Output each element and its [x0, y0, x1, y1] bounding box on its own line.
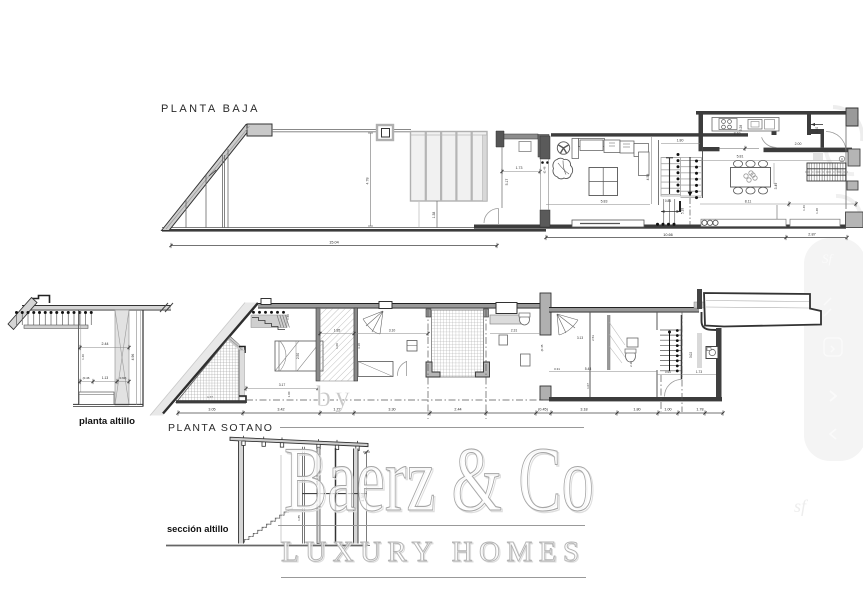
svg-text:1.77: 1.77: [207, 395, 213, 399]
svg-text:(0.45): (0.45): [538, 408, 548, 412]
svg-text:1.40: 1.40: [286, 314, 290, 320]
svg-text:1.00: 1.00: [335, 343, 339, 349]
svg-text:1.00: 1.00: [664, 408, 671, 412]
svg-text:3.49: 3.49: [774, 183, 778, 190]
svg-text:1.80: 1.80: [677, 139, 684, 143]
svg-text:sección altillo: sección altillo: [167, 524, 229, 534]
svg-text:8.11: 8.11: [745, 200, 752, 204]
svg-text:4.78: 4.78: [366, 178, 370, 185]
svg-text:2.00: 2.00: [795, 142, 802, 146]
svg-text:5.48: 5.48: [585, 367, 592, 371]
svg-text:3.17: 3.17: [279, 383, 286, 387]
svg-text:2.87: 2.87: [808, 233, 815, 237]
svg-text:15.04: 15.04: [329, 241, 339, 245]
svg-text:1.07: 1.07: [586, 383, 590, 389]
svg-text:1.73: 1.73: [696, 370, 702, 374]
svg-text:1.85: 1.85: [334, 329, 341, 333]
svg-text:2.53: 2.53: [591, 335, 595, 341]
svg-text:3.30: 3.30: [388, 408, 395, 412]
svg-text:4.59: 4.59: [646, 174, 650, 181]
svg-text:3.42: 3.42: [277, 408, 284, 412]
svg-text:(0.46: (0.46: [83, 376, 90, 380]
svg-text:1.38: 1.38: [432, 212, 436, 219]
svg-text:1.13: 1.13: [102, 376, 108, 380]
svg-text:1.40: 1.40: [815, 127, 819, 133]
svg-text:LUXURY HOMES: LUXURY HOMES: [281, 536, 585, 568]
svg-text:2.10: 2.10: [629, 361, 633, 367]
svg-text:1.73: 1.73: [516, 166, 523, 170]
svg-text:5.17: 5.17: [505, 179, 509, 186]
svg-text:10.66: 10.66: [663, 233, 673, 237]
svg-text:2.50: 2.50: [296, 353, 300, 359]
svg-text:(0.48: (0.48: [543, 166, 547, 173]
svg-text:(0.45: (0.45: [540, 344, 544, 351]
svg-text:0.31: 0.31: [554, 367, 560, 371]
svg-text:1.00: 1.00: [287, 391, 291, 397]
svg-text:1.80: 1.80: [633, 408, 640, 412]
svg-text:3.18: 3.18: [357, 343, 361, 349]
svg-text:3.13: 3.13: [577, 336, 583, 340]
svg-text:3.05: 3.05: [208, 408, 215, 412]
svg-text:3.02: 3.02: [689, 352, 693, 358]
svg-text:3.10: 3.10: [389, 329, 396, 333]
svg-text:5.28: 5.28: [739, 125, 743, 131]
svg-text:1.46: 1.46: [802, 205, 806, 211]
svg-text:planta altillo: planta altillo: [79, 416, 135, 427]
svg-text:1.48: 1.48: [815, 208, 819, 214]
svg-text:Baerz & Co: Baerz & Co: [284, 428, 594, 530]
svg-text:1.40: 1.40: [81, 354, 85, 360]
svg-text:3.10: 3.10: [734, 132, 741, 136]
svg-text:0.60: 0.60: [665, 370, 671, 374]
svg-text:2.31: 2.31: [511, 329, 518, 333]
svg-text:2.44: 2.44: [102, 342, 109, 346]
svg-text:0.60): 0.60): [120, 376, 127, 380]
svg-text:0.84: 0.84: [665, 199, 671, 203]
svg-text:4.96: 4.96: [131, 354, 135, 361]
svg-text:1.78: 1.78: [696, 408, 703, 412]
svg-text:2.44: 2.44: [454, 408, 461, 412]
svg-text:PLANTA SOTANO: PLANTA SOTANO: [168, 422, 273, 434]
svg-text:5.18: 5.18: [681, 208, 685, 214]
svg-text:5.83: 5.83: [601, 200, 608, 204]
svg-text:PLANTA BAJA: PLANTA BAJA: [161, 103, 260, 115]
svg-text:3.18: 3.18: [580, 408, 587, 412]
svg-text:5.81: 5.81: [737, 155, 744, 159]
svg-text:by: by: [316, 380, 354, 413]
